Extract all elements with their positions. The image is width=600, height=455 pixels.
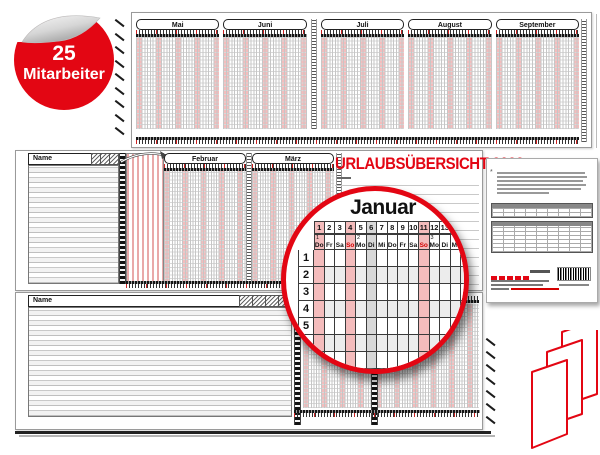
vacation-day-cell xyxy=(430,335,441,352)
vacation-day-cell xyxy=(451,301,462,318)
employee-row-number: 3 xyxy=(298,284,314,301)
vacation-day-cell xyxy=(346,284,357,301)
vacation-day-cell xyxy=(325,267,336,284)
binding-tick xyxy=(485,416,495,425)
month-title: März xyxy=(252,153,334,164)
vacation-day-cell xyxy=(377,267,388,284)
vacation-day-cell xyxy=(419,284,430,301)
month-title: Mai xyxy=(136,19,219,30)
month-title: September xyxy=(496,19,579,30)
vacation-day-cell xyxy=(325,352,336,369)
top-footer-day-band xyxy=(136,137,579,144)
vacation-day-cell xyxy=(314,267,325,284)
employee-row-number: 5 xyxy=(298,318,314,335)
footnote-text-lines xyxy=(497,172,589,196)
sheet-bottom-shadow xyxy=(19,435,495,437)
vacation-day-cell xyxy=(346,352,357,369)
vacation-day-cell xyxy=(430,284,441,301)
vacation-day-cell xyxy=(314,335,325,352)
vacation-day-cell xyxy=(409,267,420,284)
badge-25-mitarbeiter: 25 Mitarbeiter xyxy=(10,4,118,112)
vacation-day-cell xyxy=(388,250,399,267)
vacation-day-cell xyxy=(314,318,325,335)
vacation-day-cell xyxy=(325,284,336,301)
zigzag-fold-icon xyxy=(497,330,599,454)
month-panel: September xyxy=(496,19,579,129)
fold-line-strip xyxy=(119,153,126,284)
vacation-grid xyxy=(223,37,306,129)
vacation-day-cell xyxy=(419,267,430,284)
vacation-day-cell xyxy=(335,335,346,352)
badge-label: Mitarbeiter xyxy=(10,65,118,85)
vacation-day-cell xyxy=(398,352,409,369)
employee-row-number: 2 xyxy=(298,267,314,284)
vacation-day-cell xyxy=(325,335,336,352)
magnified-month-title: Januar xyxy=(302,196,464,220)
vacation-day-cell xyxy=(409,250,420,267)
vacation-day-cell xyxy=(430,250,441,267)
vacation-day-cell xyxy=(325,301,336,318)
imprint-lines xyxy=(491,280,559,292)
weekday-cell: So xyxy=(419,234,430,250)
vacation-day-cell xyxy=(388,318,399,335)
vacation-grid xyxy=(408,37,491,129)
vacation-day-cell xyxy=(430,318,441,335)
month-title: August xyxy=(408,19,491,30)
day-number-cell: 3 xyxy=(335,221,346,234)
month-panel: Juni xyxy=(223,19,306,129)
vacation-day-cell xyxy=(314,352,325,369)
vacation-grid xyxy=(164,171,246,283)
vacation-day-cell xyxy=(440,301,451,318)
vacation-day-cell xyxy=(398,267,409,284)
weekday-cell: Di xyxy=(367,234,378,250)
vacation-day-cell xyxy=(367,318,378,335)
weekday-cell: So xyxy=(346,234,357,250)
vacation-day-cell xyxy=(377,335,388,352)
binding-tick xyxy=(485,364,495,373)
binding-tick xyxy=(485,338,495,347)
vacation-day-cell xyxy=(367,301,378,318)
vacation-day-cell xyxy=(377,301,388,318)
notes-label xyxy=(337,177,351,179)
holiday-table-1 xyxy=(491,203,593,218)
day-number-cell: 7 xyxy=(377,221,388,234)
vacation-day-cell xyxy=(314,301,325,318)
vacation-day-cell xyxy=(367,250,378,267)
vacation-day-cell xyxy=(388,335,399,352)
vacation-day-cell xyxy=(440,284,451,301)
vacation-day-cell xyxy=(325,250,336,267)
binding-tick xyxy=(485,351,495,360)
weekday-cell: Di xyxy=(440,234,451,250)
vacation-day-cell xyxy=(430,352,441,369)
employee-name-rows xyxy=(28,307,292,417)
vacation-grid xyxy=(136,37,219,129)
vacation-day-cell xyxy=(314,284,325,301)
vacation-day-cell xyxy=(377,284,388,301)
vacation-day-cell xyxy=(409,318,420,335)
vacation-day-cell xyxy=(398,335,409,352)
month-panel: August xyxy=(408,19,491,129)
top-months-row: MaiJuniJuliAugustSeptember xyxy=(136,19,579,129)
vacation-day-cell xyxy=(430,267,441,284)
weekday-cell: Sa xyxy=(335,234,346,250)
vacation-day-cell xyxy=(346,301,357,318)
binding-tick xyxy=(114,127,124,136)
vacation-day-cell xyxy=(440,318,451,335)
employee-name-rows xyxy=(28,165,119,284)
vacation-day-cell xyxy=(346,335,357,352)
day-number-cell: 10 xyxy=(409,221,420,234)
vacation-day-cell xyxy=(440,250,451,267)
name-column-header: Name xyxy=(28,153,92,165)
vacation-day-cell xyxy=(377,369,388,374)
weekday-cell: Sa xyxy=(409,234,420,250)
vacation-day-cell xyxy=(346,318,357,335)
vacation-day-cell xyxy=(419,318,430,335)
day-number-cell: 13 xyxy=(440,221,451,234)
day-number-cell: 12 xyxy=(430,221,441,234)
day-number-cell: 4 xyxy=(346,221,357,234)
fold-number-strip xyxy=(311,19,317,129)
badge-count: 25 xyxy=(10,42,118,65)
vacation-day-cell xyxy=(419,301,430,318)
weekday-cell: Mi xyxy=(451,234,462,250)
vacation-day-cell xyxy=(335,250,346,267)
barcode xyxy=(557,267,591,281)
vacation-day-cell xyxy=(356,301,367,318)
vacation-day-cell xyxy=(451,352,462,369)
binding-tick xyxy=(485,403,495,412)
vacation-day-cell xyxy=(451,284,462,301)
month-panel: Mai xyxy=(136,19,219,129)
vacation-day-cell xyxy=(398,301,409,318)
vacation-day-cell xyxy=(419,250,430,267)
day-number-cell: 1 xyxy=(314,221,325,234)
vacation-day-cell xyxy=(367,369,378,374)
footnote-marker: * xyxy=(490,169,493,176)
vacation-day-cell xyxy=(346,267,357,284)
vacation-day-cell xyxy=(367,267,378,284)
vacation-day-cell xyxy=(409,352,420,369)
vacation-day-cell xyxy=(440,335,451,352)
vacation-day-cell xyxy=(377,352,388,369)
barcode-caption xyxy=(559,284,589,286)
vacation-day-cell xyxy=(440,267,451,284)
vacation-day-cell xyxy=(335,352,346,369)
vacation-day-cell xyxy=(430,301,441,318)
vacation-day-cell xyxy=(367,352,378,369)
binding-tick xyxy=(485,390,495,399)
day-number-cell: 2 xyxy=(325,221,336,234)
vacation-day-cell xyxy=(335,267,346,284)
vacation-day-cell xyxy=(356,250,367,267)
badge-text: 25 Mitarbeiter xyxy=(10,42,118,85)
vacation-day-cell xyxy=(409,284,420,301)
month-panel: Juli xyxy=(321,19,404,129)
name-column-header: Name xyxy=(28,295,240,307)
vacation-day-cell xyxy=(367,335,378,352)
vacation-day-cell xyxy=(451,335,462,352)
vacation-day-cell xyxy=(409,335,420,352)
vacation-day-cell xyxy=(335,284,346,301)
binding-tick xyxy=(114,113,124,122)
employee-row-number xyxy=(298,352,314,369)
vacation-day-cell xyxy=(398,284,409,301)
vacation-day-cell xyxy=(346,250,357,267)
back-page-fine-print: * xyxy=(486,158,598,303)
day-number-cell: 9 xyxy=(398,221,409,234)
magnifier-circle: Januar 12345678910111213141516171Do Fr S… xyxy=(281,186,469,374)
month-panel: Februar xyxy=(164,153,246,283)
employee-row-number: 4 xyxy=(298,301,314,318)
vacation-day-cell xyxy=(451,318,462,335)
day-number-cell: 8 xyxy=(388,221,399,234)
sheet-bottom-edge xyxy=(15,431,491,434)
vacation-day-cell xyxy=(398,250,409,267)
weekday-cell: Fr xyxy=(325,234,336,250)
vacation-day-cell xyxy=(451,250,462,267)
bottom-footer-day-band xyxy=(294,410,480,417)
vacation-day-cell xyxy=(451,267,462,284)
binding-tick xyxy=(485,377,495,386)
employee-row-number: 6 xyxy=(298,335,314,352)
vacation-day-cell xyxy=(388,352,399,369)
vacation-day-cell xyxy=(367,284,378,301)
holiday-table-2 xyxy=(491,221,593,253)
weekday-cell: Fr xyxy=(398,234,409,250)
weekday-cell: 2Mo xyxy=(356,234,367,250)
product-image-vacation-planner: 25 Mitarbeiter MaiJuniJuliAugustSeptembe… xyxy=(0,0,600,455)
vacation-day-cell xyxy=(377,250,388,267)
vacation-day-cell xyxy=(335,301,346,318)
day-number-cell: 5 xyxy=(356,221,367,234)
vacation-day-cell xyxy=(398,318,409,335)
vacation-day-cell xyxy=(388,301,399,318)
vacation-day-cell xyxy=(419,352,430,369)
month-title: Juni xyxy=(223,19,306,30)
weekday-cell: 3Mo xyxy=(430,234,441,250)
vacation-day-cell xyxy=(356,284,367,301)
vacation-grid xyxy=(496,37,579,129)
weekday-cell: Do xyxy=(388,234,399,250)
fold-number-strip xyxy=(581,19,587,142)
day-number-cell: 11 xyxy=(419,221,430,234)
folded-january-panel xyxy=(126,153,164,284)
vacation-grid xyxy=(321,37,404,129)
vacation-day-cell xyxy=(356,335,367,352)
vacation-day-cell xyxy=(409,301,420,318)
vacation-day-cell xyxy=(388,284,399,301)
weekday-cell: Mi xyxy=(377,234,388,250)
month-title: Februar xyxy=(164,153,246,164)
vacation-day-cell xyxy=(335,318,346,335)
vacation-day-cell xyxy=(314,250,325,267)
day-number-cell: 6 xyxy=(367,221,378,234)
fold-mark-cells xyxy=(92,153,119,165)
planner-sheet-top: MaiJuniJuliAugustSeptember xyxy=(131,12,592,148)
vacation-day-cell xyxy=(356,352,367,369)
day-number-cell: 14 xyxy=(451,221,462,234)
vacation-day-cell xyxy=(356,318,367,335)
vacation-day-cell xyxy=(388,267,399,284)
weekday-cell: 1Do xyxy=(314,234,325,250)
vacation-day-cell xyxy=(461,267,469,284)
employee-row-number: 1 xyxy=(298,250,314,267)
vacation-day-cell xyxy=(356,267,367,284)
month-title: Juli xyxy=(321,19,404,30)
vacation-day-cell xyxy=(325,318,336,335)
vacation-day-cell xyxy=(419,335,430,352)
vacation-day-cell xyxy=(377,318,388,335)
magnified-january-table: 12345678910111213141516171Do Fr Sa So2Mo… xyxy=(298,221,469,374)
vacation-day-cell xyxy=(440,352,451,369)
back-page-edge xyxy=(596,14,597,148)
